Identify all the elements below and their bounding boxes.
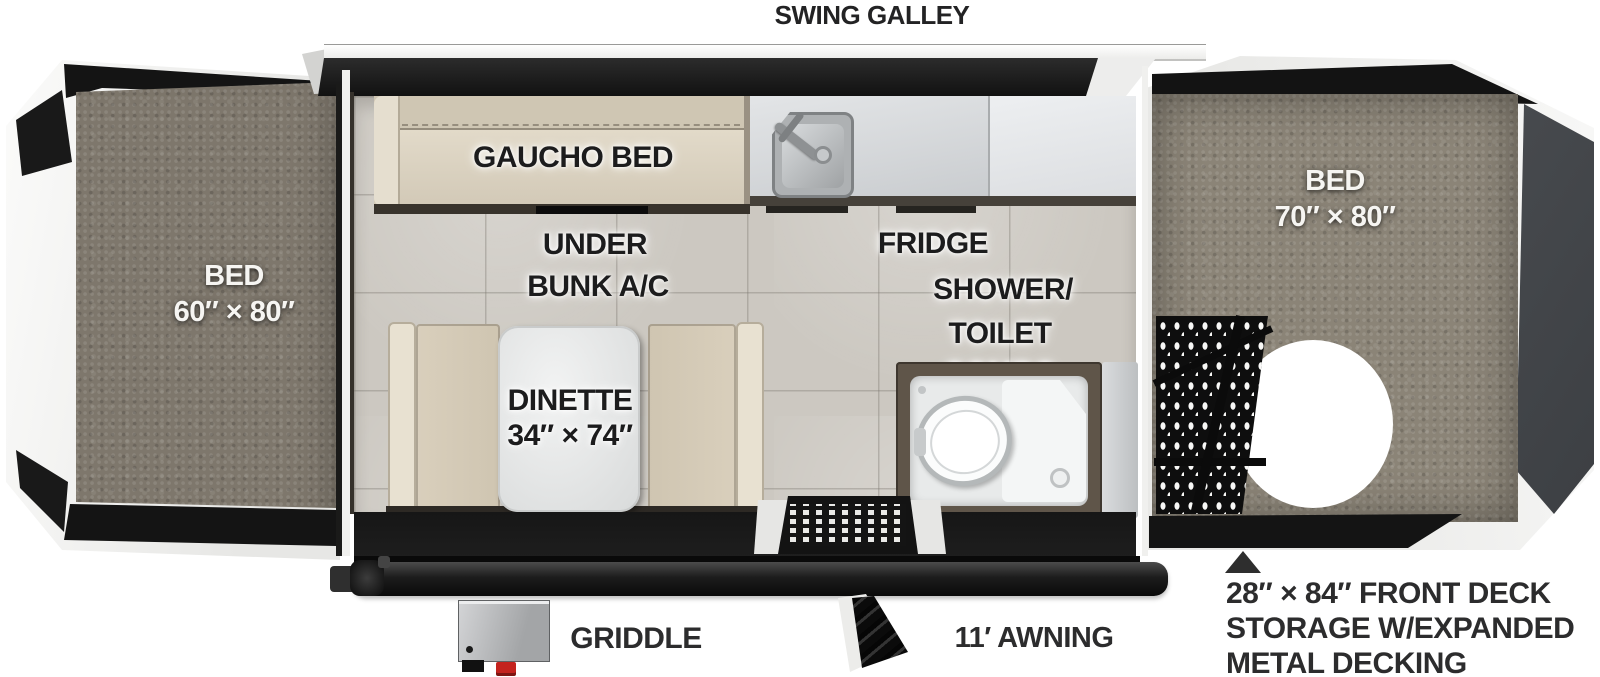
awning-label: 11′ AWNING (884, 622, 1184, 655)
griddle-foot (462, 660, 484, 672)
entry-step-tread (790, 504, 906, 546)
dinette-bench-left-backrest (388, 322, 416, 514)
shower-toilet-label-line1: SHOWER/ (843, 274, 1163, 306)
body-right-rail (1142, 66, 1148, 556)
shower-fitting (918, 386, 926, 394)
toilet-hinge (914, 428, 926, 456)
under-bunk-ac-label-line2: BUNK A/C (438, 271, 758, 303)
awning-roller (352, 562, 1168, 596)
under-bunk-ac-vent (536, 206, 648, 214)
sink-drain-icon (814, 146, 832, 164)
gaucho-bed-stitching (402, 124, 740, 126)
swing-galley-panel (318, 58, 1140, 96)
dinette-bench-right (648, 324, 736, 512)
right-bed-extension (1140, 50, 1600, 566)
griddle-label: GRIDDLE (486, 622, 786, 656)
deck-note-line1: 28″ × 84″ FRONT DECK (1226, 577, 1551, 611)
dinette-size-label: 34″ × 74″ (410, 420, 730, 452)
body-bottom-band (354, 512, 1136, 558)
body-left-rail (342, 70, 350, 556)
under-bunk-ac-label-line1: UNDER (435, 229, 755, 261)
cabinet-vent (766, 206, 848, 213)
right-bed-label: BED (1175, 165, 1495, 198)
cabinet-vent (896, 206, 976, 213)
fridge-cabinet (988, 96, 1136, 204)
griddle-knob (496, 662, 516, 673)
shower-drain-icon (1050, 468, 1070, 488)
interior-left-wall (350, 92, 354, 514)
deck-note-line3: METAL DECKING (1226, 647, 1467, 677)
dinette-bench-left (416, 324, 500, 512)
bath-divider-panel (1102, 362, 1138, 518)
shower-toilet-label-line2: TOILET (840, 318, 1160, 350)
right-bed-size-label: 70″ × 80″ (1175, 201, 1495, 234)
dinette-bench-right-backrest (736, 322, 764, 514)
fridge-label: FRIDGE (773, 228, 1093, 260)
floorplan-canvas: SWING GALLEY BED 60″ × 80″ BED 70″ × 80″ (0, 0, 1600, 677)
deck-note-line2: STORAGE W/EXPANDED (1226, 612, 1574, 646)
gaucho-bed-label: GAUCHO BED (413, 142, 733, 174)
gaucho-bed-arm (374, 96, 400, 206)
pointer-triangle-icon (1225, 551, 1261, 573)
griddle-igniter (466, 646, 473, 653)
dinette-label: DINETTE (410, 385, 730, 417)
swing-galley-label: SWING GALLEY (672, 0, 1072, 31)
shower-floor (1002, 380, 1086, 502)
awning-pin (378, 556, 390, 568)
